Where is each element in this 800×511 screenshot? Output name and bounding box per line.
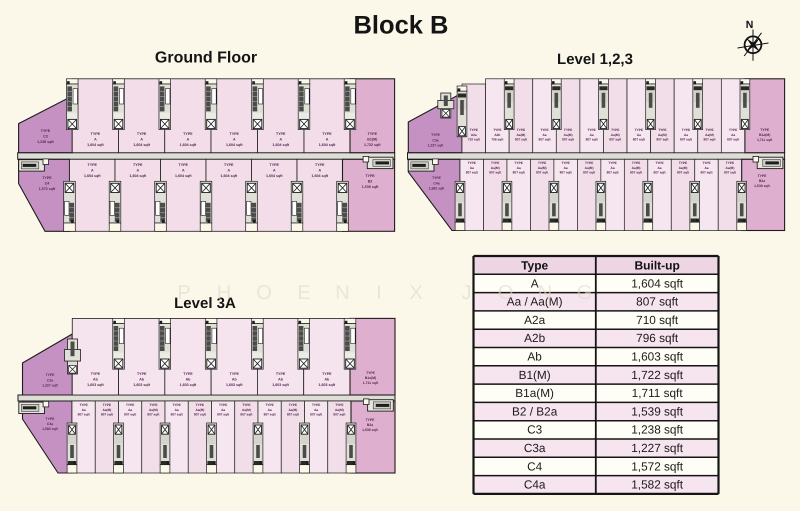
svg-text:807 sqft: 807 sqft — [700, 171, 713, 175]
svg-text:807 sqft: 807 sqft — [636, 295, 679, 309]
svg-text:807 sqft: 807 sqft — [489, 171, 502, 175]
svg-text:1,227 sqft: 1,227 sqft — [631, 441, 684, 455]
svg-text:Aa: Aa — [128, 408, 132, 412]
svg-text:807 sqft: 807 sqft — [583, 171, 596, 175]
svg-text:Aa: Aa — [542, 133, 546, 137]
svg-text:1,604 sqft: 1,604 sqft — [631, 276, 684, 290]
svg-text:807 sqft: 807 sqft — [562, 138, 575, 142]
svg-text:1,711 sqft: 1,711 sqft — [363, 381, 379, 385]
svg-text:Aa: Aa — [611, 166, 615, 170]
svg-text:Aa(M): Aa(M) — [632, 166, 641, 170]
svg-text:Aa: Aa — [731, 133, 735, 137]
svg-text:807 sqft: 807 sqft — [101, 413, 114, 417]
svg-text:C4a: C4a — [433, 181, 439, 185]
svg-text:Aa(M): Aa(M) — [288, 408, 297, 412]
svg-text:1,711 sqft: 1,711 sqft — [632, 386, 684, 400]
svg-text:796 sqft: 796 sqft — [491, 138, 504, 142]
svg-text:TYPE: TYPE — [517, 128, 525, 132]
svg-text:TYPE: TYPE — [276, 132, 286, 136]
svg-text:807 sqft: 807 sqft — [538, 138, 551, 142]
svg-text:Type: Type — [521, 259, 548, 273]
svg-text:TYPE: TYPE — [608, 161, 616, 165]
svg-text:TYPE: TYPE — [196, 403, 204, 407]
svg-text:807 sqft: 807 sqft — [724, 171, 737, 175]
svg-text:807 sqft: 807 sqft — [194, 413, 207, 417]
svg-text:N: N — [746, 19, 754, 31]
svg-text:C3: C3 — [527, 423, 543, 437]
svg-text:Aa(M): Aa(M) — [149, 408, 158, 412]
svg-text:1,604 sqft: 1,604 sqft — [180, 143, 197, 147]
svg-text:Block B: Block B — [354, 12, 449, 40]
svg-text:807 sqft: 807 sqft — [513, 171, 526, 175]
svg-text:807 sqft: 807 sqft — [704, 138, 717, 142]
svg-text:TYPE: TYPE — [561, 161, 569, 165]
svg-text:TYPE: TYPE — [432, 176, 442, 180]
svg-text:Aa(M): Aa(M) — [491, 166, 500, 170]
svg-text:1,227 sqft: 1,227 sqft — [428, 144, 445, 148]
svg-text:B2a: B2a — [367, 423, 373, 427]
svg-text:Aa: Aa — [175, 408, 179, 412]
svg-text:TYPE: TYPE — [172, 403, 180, 407]
svg-text:710 sqft: 710 sqft — [468, 138, 481, 142]
svg-text:Aa(M): Aa(M) — [538, 166, 547, 170]
svg-text:X: X — [409, 282, 422, 304]
svg-text:TYPE: TYPE — [587, 128, 595, 132]
svg-text:A: A — [233, 137, 236, 141]
svg-text:TYPE: TYPE — [126, 403, 134, 407]
svg-text:1,604 sqft: 1,604 sqft — [133, 143, 150, 147]
svg-text:Aa: Aa — [268, 408, 272, 412]
svg-text:1,582 sqft: 1,582 sqft — [631, 478, 684, 492]
svg-text:TYPE: TYPE — [365, 174, 375, 178]
svg-text:TYPE: TYPE — [149, 403, 157, 407]
svg-text:O: O — [256, 282, 272, 304]
svg-text:J: J — [462, 282, 472, 304]
svg-text:807 sqft: 807 sqft — [466, 171, 479, 175]
svg-text:1,603 sqft: 1,603 sqft — [226, 383, 243, 387]
svg-text:TYPE: TYPE — [42, 176, 52, 180]
svg-text:B2: B2 — [368, 179, 373, 183]
svg-text:Aa: Aa — [637, 133, 641, 137]
svg-text:1,604 sqft: 1,604 sqft — [266, 174, 283, 178]
svg-text:1,227 sqft: 1,227 sqft — [42, 384, 59, 388]
svg-text:1,572 sqft: 1,572 sqft — [631, 459, 684, 473]
svg-text:TYPE: TYPE — [276, 372, 286, 376]
svg-text:807 sqft: 807 sqft — [586, 138, 599, 142]
svg-text:807 sqft: 807 sqft — [633, 138, 646, 142]
svg-text:A: A — [94, 137, 97, 141]
svg-text:1,238 sqft: 1,238 sqft — [37, 140, 54, 144]
svg-text:TYPE: TYPE — [470, 128, 478, 132]
svg-text:807 sqft: 807 sqft — [609, 138, 622, 142]
svg-text:TYPE: TYPE — [322, 372, 332, 376]
svg-text:TYPE: TYPE — [322, 132, 332, 136]
svg-text:TYPE: TYPE — [493, 128, 501, 132]
svg-text:TYPE: TYPE — [705, 128, 713, 132]
svg-text:1,603 sqft: 1,603 sqft — [631, 350, 684, 364]
svg-text:TYPE: TYPE — [366, 371, 376, 375]
svg-text:1,582 sqft: 1,582 sqft — [429, 187, 446, 191]
svg-text:O: O — [498, 282, 514, 304]
svg-text:1,604 sqft: 1,604 sqft — [319, 143, 336, 147]
svg-text:TYPE: TYPE — [726, 161, 734, 165]
svg-text:Aa(M): Aa(M) — [242, 408, 251, 412]
svg-text:Aa: Aa — [704, 166, 708, 170]
svg-text:A2a: A2a — [471, 133, 477, 137]
svg-text:A2b: A2b — [524, 331, 545, 345]
svg-text:Aa: Aa — [564, 166, 568, 170]
svg-text:1,582 sqft: 1,582 sqft — [42, 427, 59, 431]
svg-text:1,604 sqft: 1,604 sqft — [226, 143, 243, 147]
svg-text:807 sqft: 807 sqft — [124, 413, 137, 417]
svg-text:TYPE: TYPE — [46, 417, 56, 421]
svg-text:TYPE: TYPE — [729, 128, 737, 132]
svg-text:B1(M): B1(M) — [367, 137, 378, 141]
svg-text:TYPE: TYPE — [270, 163, 280, 167]
svg-text:807 sqft: 807 sqft — [287, 413, 300, 417]
svg-text:Ab: Ab — [93, 377, 99, 381]
svg-text:807 sqft: 807 sqft — [607, 171, 620, 175]
svg-text:C3a: C3a — [432, 138, 438, 142]
svg-text:TYPE: TYPE — [91, 372, 101, 376]
svg-text:807 sqft: 807 sqft — [333, 413, 346, 417]
svg-text:807 sqft: 807 sqft — [560, 171, 573, 175]
svg-text:1,603 sqft: 1,603 sqft — [133, 383, 150, 387]
svg-text:A: A — [318, 168, 321, 172]
svg-text:Ab: Ab — [232, 377, 238, 381]
svg-text:Aa(M): Aa(M) — [726, 166, 735, 170]
svg-text:807 sqft: 807 sqft — [680, 138, 693, 142]
svg-text:A: A — [140, 137, 143, 141]
svg-text:Aa(M): Aa(M) — [564, 133, 573, 137]
svg-text:TYPE: TYPE — [658, 128, 666, 132]
svg-text:1,604 sqft: 1,604 sqft — [87, 143, 104, 147]
svg-text:TYPE: TYPE — [312, 403, 320, 407]
svg-text:TYPE: TYPE — [230, 132, 240, 136]
svg-text:A2b: A2b — [494, 133, 500, 137]
svg-text:TYPE: TYPE — [46, 373, 56, 377]
svg-text:Aa: Aa — [82, 408, 86, 412]
svg-text:807 sqft: 807 sqft — [515, 138, 528, 142]
svg-text:807 sqft: 807 sqft — [654, 171, 667, 175]
svg-text:1,603 sqft: 1,603 sqft — [180, 383, 197, 387]
svg-text:1,539 sqft: 1,539 sqft — [362, 428, 379, 432]
svg-text:807 sqft: 807 sqft — [677, 171, 690, 175]
svg-text:TYPE: TYPE — [219, 403, 227, 407]
svg-text:A: A — [273, 168, 276, 172]
svg-text:C3a: C3a — [524, 441, 546, 455]
svg-text:1,603 sqft: 1,603 sqft — [87, 383, 104, 387]
svg-text:807 sqft: 807 sqft — [727, 138, 740, 142]
svg-text:Aa(M): Aa(M) — [102, 408, 111, 412]
svg-text:TYPE: TYPE — [491, 161, 499, 165]
svg-text:B1(M): B1(M) — [519, 368, 551, 382]
svg-text:1,604 sqft: 1,604 sqft — [220, 174, 237, 178]
svg-text:Level 1,2,3: Level 1,2,3 — [557, 51, 633, 68]
svg-text:N: N — [335, 282, 349, 304]
svg-text:TYPE: TYPE — [632, 161, 640, 165]
svg-text:TYPE: TYPE — [515, 161, 523, 165]
svg-text:TYPE: TYPE — [540, 128, 548, 132]
svg-text:TYPE: TYPE — [88, 163, 98, 167]
svg-text:Aa: Aa — [314, 408, 318, 412]
svg-text:I: I — [376, 282, 382, 304]
svg-text:TYPE: TYPE — [137, 372, 147, 376]
svg-text:B1a(M): B1a(M) — [515, 386, 554, 400]
svg-text:TYPE: TYPE — [103, 403, 111, 407]
svg-text:TYPE: TYPE — [183, 372, 193, 376]
svg-text:A: A — [187, 137, 190, 141]
svg-text:Ab: Ab — [324, 377, 330, 381]
svg-text:Ab: Ab — [186, 377, 192, 381]
svg-text:1,539 sqft: 1,539 sqft — [362, 185, 379, 189]
svg-text:Aa(M): Aa(M) — [705, 133, 714, 137]
svg-text:TYPE: TYPE — [682, 128, 690, 132]
svg-text:A: A — [182, 168, 185, 172]
svg-text:A2a: A2a — [524, 313, 545, 327]
svg-text:TYPE: TYPE — [230, 372, 240, 376]
svg-text:TYPE: TYPE — [468, 161, 476, 165]
svg-text:1,539 sqft: 1,539 sqft — [754, 184, 771, 188]
svg-text:TYPE: TYPE — [137, 132, 147, 136]
svg-text:Aa(M): Aa(M) — [679, 166, 688, 170]
svg-text:C3: C3 — [43, 134, 48, 138]
svg-text:1,604 sqft: 1,604 sqft — [175, 174, 192, 178]
svg-text:TYPE: TYPE — [564, 128, 572, 132]
svg-text:807 sqft: 807 sqft — [147, 413, 160, 417]
svg-text:807 sqft: 807 sqft — [240, 413, 253, 417]
svg-text:TYPE: TYPE — [760, 128, 770, 132]
svg-text:1,603 sqft: 1,603 sqft — [319, 383, 336, 387]
svg-text:1,722 sqft: 1,722 sqft — [364, 143, 381, 147]
svg-text:Aa: Aa — [470, 166, 474, 170]
svg-text:807 sqft: 807 sqft — [630, 171, 643, 175]
svg-text:1,604 sqft: 1,604 sqft — [84, 174, 101, 178]
svg-text:TYPE: TYPE — [679, 161, 687, 165]
svg-text:A: A — [91, 168, 94, 172]
svg-text:796 sqft: 796 sqft — [636, 331, 679, 345]
svg-text:1,572 sqft: 1,572 sqft — [39, 187, 56, 191]
svg-text:C4: C4 — [45, 181, 50, 185]
svg-text:807 sqft: 807 sqft — [310, 413, 323, 417]
svg-text:1,603 sqft: 1,603 sqft — [272, 383, 289, 387]
svg-text:TYPE: TYPE — [265, 403, 273, 407]
svg-text:807 sqft: 807 sqft — [656, 138, 669, 142]
svg-text:C4: C4 — [527, 459, 543, 473]
svg-text:B2 / B2a: B2 / B2a — [512, 404, 558, 418]
svg-text:C3a: C3a — [47, 378, 53, 382]
svg-text:Ab: Ab — [278, 377, 284, 381]
svg-text:TYPE: TYPE — [133, 163, 143, 167]
svg-text:TYPE: TYPE — [635, 128, 643, 132]
svg-text:H: H — [217, 282, 231, 304]
svg-text:TYPE: TYPE — [41, 129, 51, 133]
svg-text:Ab: Ab — [527, 350, 542, 364]
svg-text:Aa(M): Aa(M) — [335, 408, 344, 412]
svg-text:807 sqft: 807 sqft — [264, 413, 277, 417]
svg-text:C4a: C4a — [47, 422, 53, 426]
svg-text:TYPE: TYPE — [335, 403, 343, 407]
svg-text:A: A — [326, 137, 329, 141]
svg-text:TYPE: TYPE — [431, 133, 441, 137]
svg-text:710 sqft: 710 sqft — [636, 313, 679, 327]
svg-text:B1a(M): B1a(M) — [759, 133, 770, 137]
svg-text:TYPE: TYPE — [538, 161, 546, 165]
svg-text:TYPE: TYPE — [315, 163, 325, 167]
svg-text:1,711 sqft: 1,711 sqft — [757, 138, 773, 142]
svg-text:Aa / Aa(M): Aa / Aa(M) — [507, 295, 563, 309]
svg-text:A: A — [279, 137, 282, 141]
svg-text:1,604 sqft: 1,604 sqft — [311, 174, 328, 178]
svg-text:Aa(M): Aa(M) — [585, 166, 594, 170]
svg-text:TYPE: TYPE — [758, 174, 768, 178]
svg-text:TYPE: TYPE — [585, 161, 593, 165]
svg-text:G: G — [577, 282, 593, 304]
svg-text:B1a(M): B1a(M) — [365, 376, 376, 380]
svg-text:Ab: Ab — [139, 377, 145, 381]
svg-text:Aa(M): Aa(M) — [658, 133, 667, 137]
svg-text:TYPE: TYPE — [242, 403, 250, 407]
svg-text:TYPE: TYPE — [611, 128, 619, 132]
svg-text:Aa: Aa — [221, 408, 225, 412]
svg-text:B2a: B2a — [759, 179, 765, 183]
svg-text:1,539 sqft: 1,539 sqft — [631, 404, 684, 418]
svg-text:A: A — [136, 168, 139, 172]
svg-text:TYPE: TYPE — [702, 161, 710, 165]
svg-text:1,604 sqft: 1,604 sqft — [272, 143, 289, 147]
svg-text:TYPE: TYPE — [366, 418, 376, 422]
svg-text:P: P — [177, 282, 190, 304]
svg-text:1,238 sqft: 1,238 sqft — [631, 423, 684, 437]
svg-text:1,722 sqft: 1,722 sqft — [631, 368, 684, 382]
svg-text:807 sqft: 807 sqft — [78, 413, 91, 417]
svg-text:TYPE: TYPE — [289, 403, 297, 407]
svg-text:807 sqft: 807 sqft — [171, 413, 184, 417]
svg-text:TYPE: TYPE — [368, 132, 378, 136]
svg-text:807 sqft: 807 sqft — [536, 171, 549, 175]
svg-text:E: E — [297, 282, 310, 304]
svg-text:N: N — [538, 282, 552, 304]
svg-text:Aa(M): Aa(M) — [611, 133, 620, 137]
svg-text:Aa: Aa — [517, 166, 521, 170]
svg-text:Aa(M): Aa(M) — [195, 408, 204, 412]
svg-text:TYPE: TYPE — [179, 163, 189, 167]
svg-text:807 sqft: 807 sqft — [217, 413, 230, 417]
svg-text:TYPE: TYPE — [655, 161, 663, 165]
svg-text:TYPE: TYPE — [91, 132, 101, 136]
svg-text:Aa(M): Aa(M) — [517, 133, 526, 137]
svg-text:TYPE: TYPE — [79, 403, 87, 407]
svg-text:C4a: C4a — [524, 478, 546, 492]
svg-text:TYPE: TYPE — [183, 132, 193, 136]
svg-text:Ground Floor: Ground Floor — [155, 50, 257, 67]
svg-text:Built-up: Built-up — [634, 259, 679, 273]
svg-text:Aa: Aa — [590, 133, 594, 137]
svg-text:TYPE: TYPE — [224, 163, 234, 167]
svg-text:Aa: Aa — [684, 133, 688, 137]
svg-text:Aa: Aa — [657, 166, 661, 170]
svg-text:1,604 sqft: 1,604 sqft — [129, 174, 146, 178]
svg-text:A: A — [227, 168, 230, 172]
